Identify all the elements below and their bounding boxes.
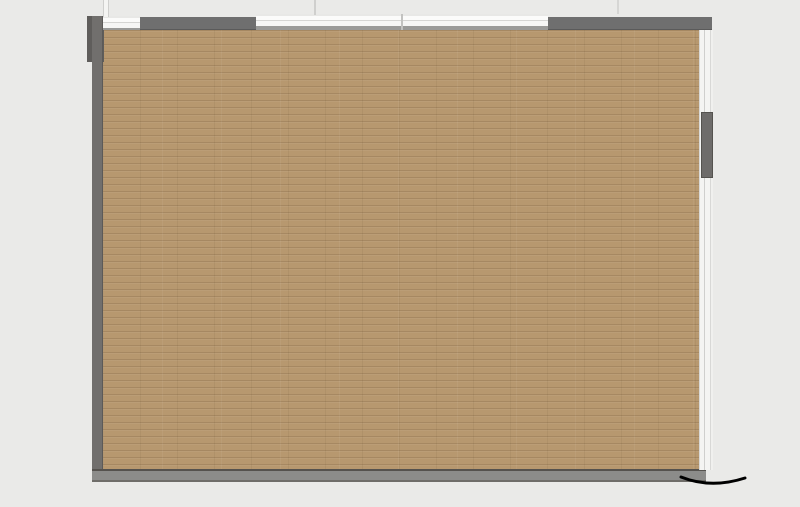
exterior-line-left <box>103 0 109 17</box>
wall-top-right-segment <box>548 17 712 30</box>
exterior-line-right <box>617 0 619 14</box>
door-right <box>701 112 713 178</box>
window-band-top-left <box>103 16 140 30</box>
room-floor <box>103 30 699 470</box>
brand-logo-swoosh-icon <box>679 474 749 488</box>
wall-top-left-segment <box>140 17 256 30</box>
office-floor-plan <box>0 0 800 507</box>
exterior-line-center <box>314 0 316 15</box>
window-mullion <box>401 14 403 30</box>
window-wall-right <box>699 30 713 470</box>
wall-bottom <box>92 469 706 482</box>
wall-left <box>92 16 103 481</box>
